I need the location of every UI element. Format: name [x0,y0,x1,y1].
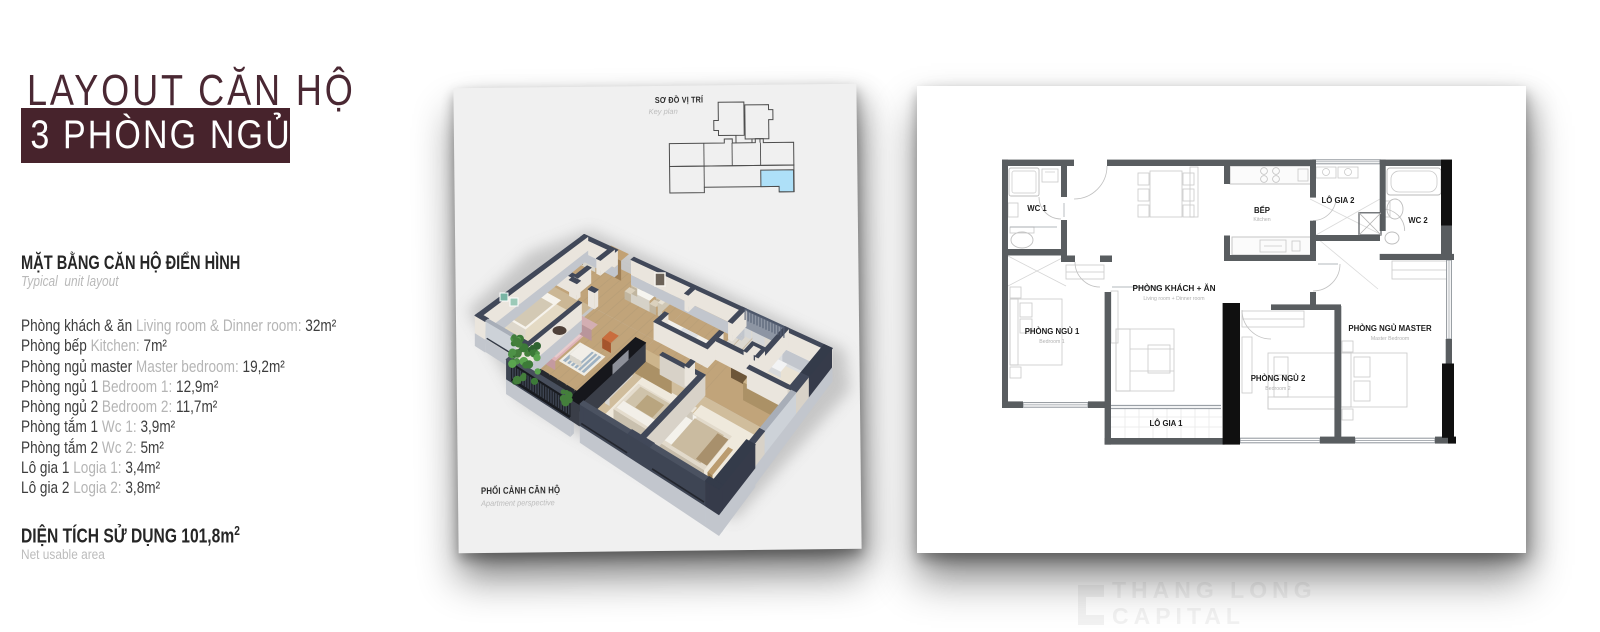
svg-text:PHÒNG KHÁCH + ĂN: PHÒNG KHÁCH + ĂN [1132,282,1215,293]
svg-text:WC 2: WC 2 [1408,216,1428,225]
svg-text:Living room + Dinner room: Living room + Dinner room [1143,296,1204,302]
svg-text:Kitchen: Kitchen [1253,217,1270,223]
svg-text:PHÒNG NGỦ 2: PHÒNG NGỦ 2 [1251,374,1306,383]
svg-text:LÔ GIA 2: LÔ GIA 2 [1321,196,1355,205]
svg-text:Bedroom 2: Bedroom 2 [1265,386,1290,392]
svg-text:LÔ GIA 1: LÔ GIA 1 [1149,419,1183,428]
svg-text:Bedroom 1: Bedroom 1 [1039,339,1064,345]
svg-text:PHÒNG NGỦ 1: PHÒNG NGỦ 1 [1025,327,1080,336]
svg-text:WC 1: WC 1 [1027,204,1047,213]
svg-text:Master Bedroom: Master Bedroom [1371,336,1409,342]
svg-text:BẾP: BẾP [1254,205,1270,215]
svg-text:PHÒNG NGỦ MASTER: PHÒNG NGỦ MASTER [1348,324,1432,333]
